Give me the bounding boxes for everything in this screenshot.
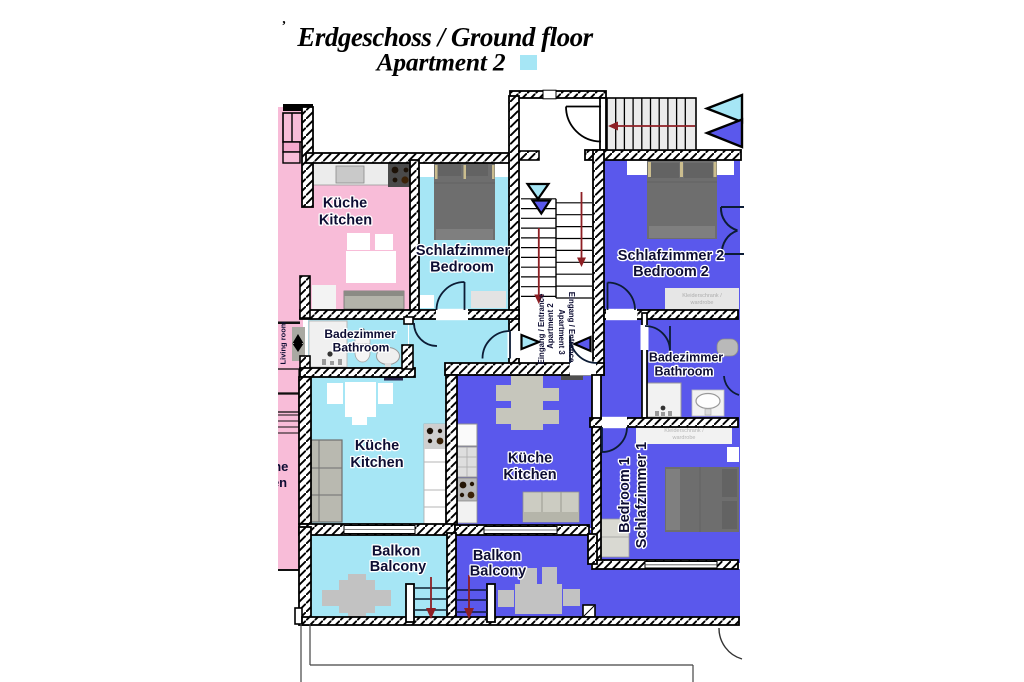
svg-text:Kitchen: Kitchen bbox=[503, 467, 556, 483]
svg-text:Balkon: Balkon bbox=[473, 548, 521, 564]
svg-text:Kleiderschrank /: Kleiderschrank / bbox=[664, 428, 704, 434]
svg-text:Apartment 2: Apartment 2 bbox=[546, 303, 555, 349]
svg-text:Küche: Küche bbox=[323, 196, 367, 212]
svg-text:Bathroom: Bathroom bbox=[654, 365, 713, 379]
svg-text:wardrobe: wardrobe bbox=[690, 300, 714, 306]
svg-text:Bathroom: Bathroom bbox=[333, 341, 390, 355]
svg-text:Bedroom 1: Bedroom 1 bbox=[617, 457, 633, 533]
svg-text:Eingang / Entrance: Eingang / Entrance bbox=[567, 292, 576, 363]
svg-text:Schlafzimmer 2: Schlafzimmer 2 bbox=[618, 248, 724, 264]
svg-text:Eingang / Entrance: Eingang / Entrance bbox=[537, 293, 546, 364]
svg-text:Kleiderschrank /: Kleiderschrank / bbox=[682, 293, 722, 299]
svg-text:Balkon: Balkon bbox=[372, 544, 420, 560]
svg-text:Schlafzimmer: Schlafzimmer bbox=[416, 243, 511, 259]
svg-text:Küche: Küche bbox=[508, 451, 552, 467]
svg-text:Living room: Living room bbox=[279, 321, 288, 364]
svg-text:Balcony: Balcony bbox=[370, 559, 426, 575]
svg-text:’: ’ bbox=[281, 19, 286, 34]
svg-text:Apartment 3: Apartment 3 bbox=[557, 309, 566, 355]
svg-text:Kitchen: Kitchen bbox=[350, 455, 403, 471]
svg-text:Badezimmer: Badezimmer bbox=[649, 351, 723, 365]
svg-text:Kitchen: Kitchen bbox=[319, 213, 372, 229]
svg-text:Küche: Küche bbox=[355, 438, 399, 454]
svg-text:Badezimmer: Badezimmer bbox=[324, 327, 396, 341]
svg-text:Bedroom: Bedroom bbox=[430, 260, 494, 276]
svg-text:Apartment 2: Apartment 2 bbox=[375, 48, 506, 77]
svg-text:Balcony: Balcony bbox=[470, 564, 526, 580]
svg-text:Bedroom 2: Bedroom 2 bbox=[633, 264, 709, 280]
svg-text:wardrobe: wardrobe bbox=[672, 435, 696, 441]
svg-text:Schlafzimmer 1: Schlafzimmer 1 bbox=[634, 442, 650, 548]
